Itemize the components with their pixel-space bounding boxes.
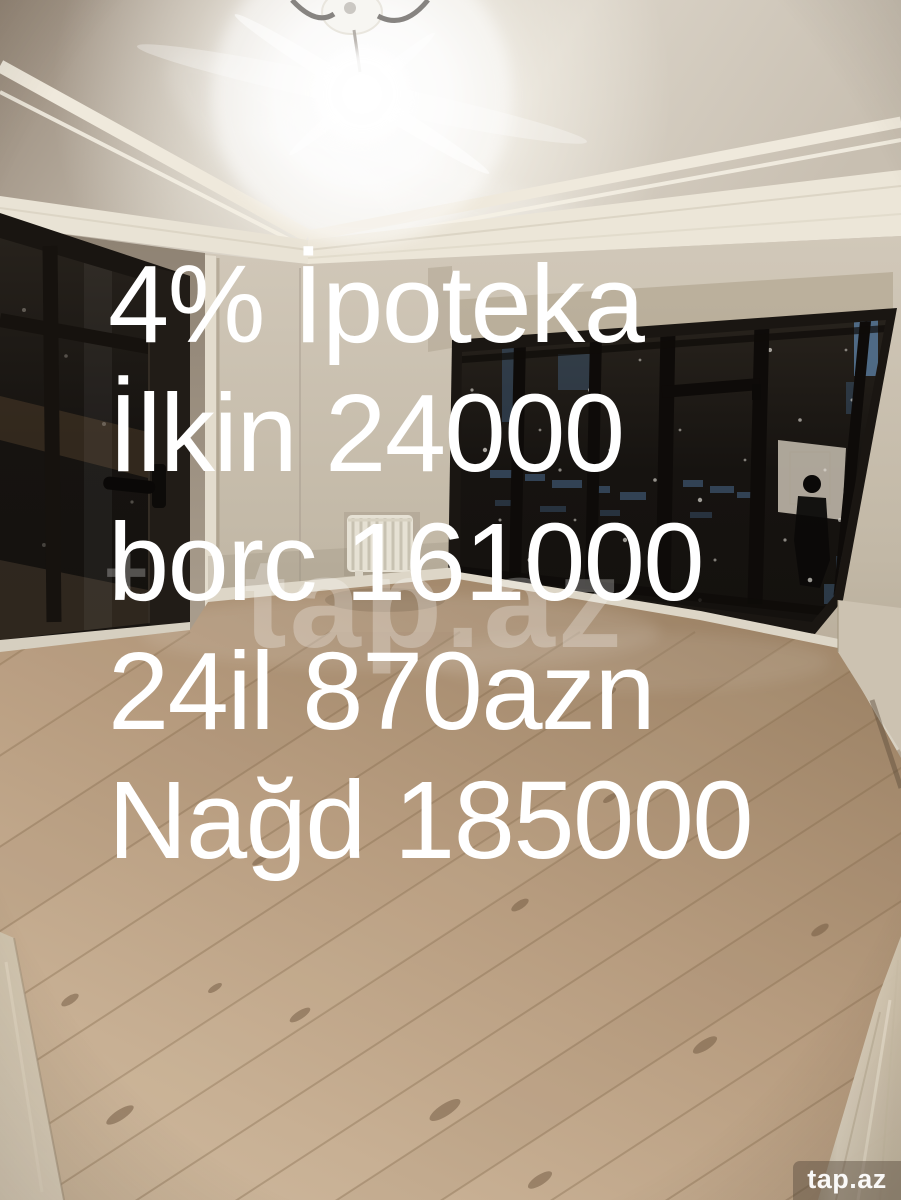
overlay-line-borc: borc 161000 <box>108 498 752 627</box>
overlay-line-ipoteka: 4% İpoteka <box>108 240 752 369</box>
watermark-corner: tap.az <box>793 1161 901 1200</box>
listing-photo: 4% İpoteka İlkin 24000 borc 161000 24il … <box>0 0 901 1200</box>
overlay-line-ilkin: İlkin 24000 <box>108 369 752 498</box>
overlay-line-nagd: Nağd 185000 <box>108 756 752 885</box>
watermark-corner-text: tap.az <box>807 1164 887 1197</box>
overlay-line-il-azn: 24il 870azn <box>108 627 752 756</box>
price-overlay: 4% İpoteka İlkin 24000 borc 161000 24il … <box>108 240 752 885</box>
